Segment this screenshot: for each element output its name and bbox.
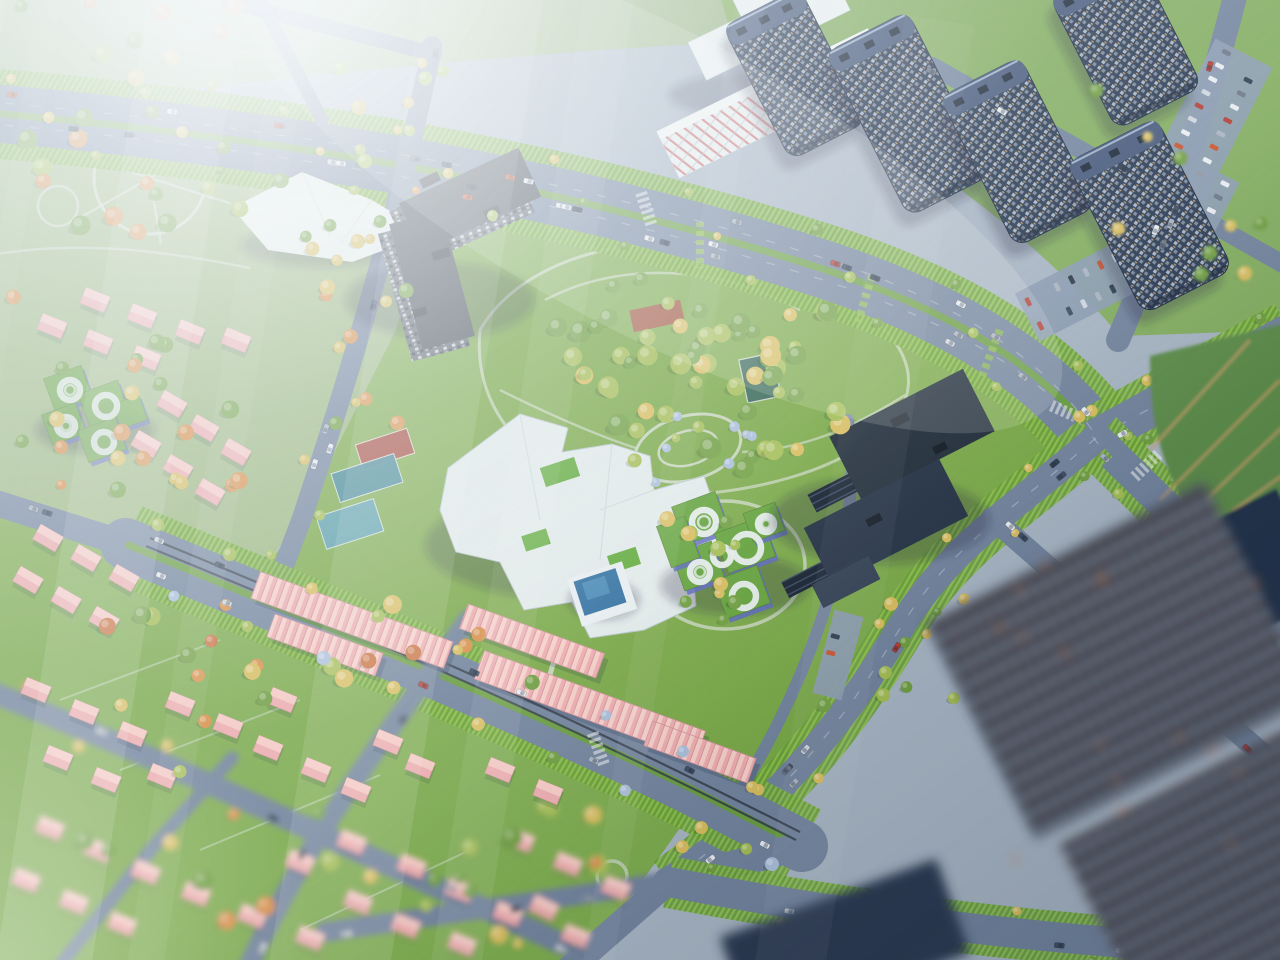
aerial-render	[0, 0, 1280, 960]
sunlight-overlay	[0, 0, 1280, 960]
depth-tint	[0, 0, 1280, 960]
